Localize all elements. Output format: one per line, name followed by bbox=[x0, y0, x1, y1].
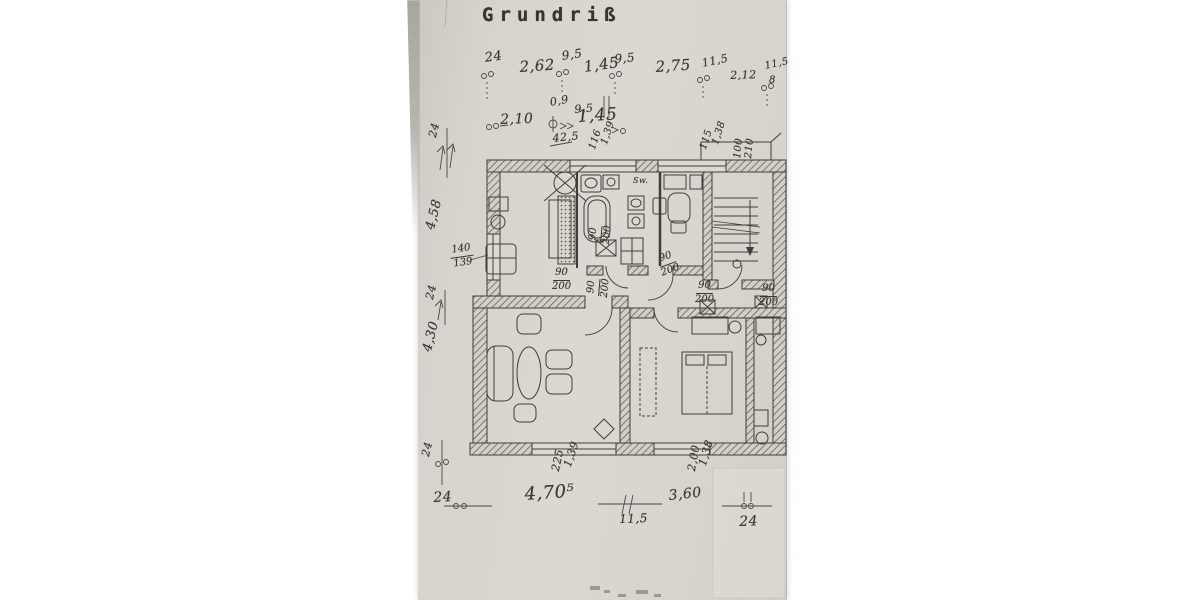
dim-3-60: 3,60 bbox=[668, 486, 702, 503]
dim-24-bot2: 24 bbox=[739, 514, 758, 529]
dim-4-70-5: 4,70⁵ bbox=[524, 483, 575, 504]
interior-walls bbox=[473, 172, 786, 443]
dim-2-12: 2,12 bbox=[730, 69, 757, 81]
dim-11-5-c: 11,5 bbox=[619, 512, 648, 525]
dim-9-5-a: 9,5 bbox=[561, 47, 583, 62]
door-90-200-e-numerator: 90 bbox=[760, 284, 777, 297]
door-90-200-d: 90200 bbox=[695, 281, 714, 305]
dim-9-5-b: 9,5 bbox=[614, 51, 636, 65]
bathroom-fixtures bbox=[581, 175, 644, 264]
dim-24-left1: 24 bbox=[427, 121, 441, 138]
door-90-200-e: 90200 bbox=[759, 284, 778, 308]
door-90-200-e-denominator: 200 bbox=[759, 297, 778, 309]
door-210: 210 bbox=[744, 138, 756, 160]
dim-42-5: 42,5 bbox=[552, 130, 580, 144]
door-90-200-a-denominator: 200 bbox=[552, 281, 571, 293]
dim-0-9: 0,9 bbox=[549, 94, 570, 108]
scan-speckles bbox=[590, 586, 661, 597]
dim-2-62: 2,62 bbox=[519, 58, 555, 75]
dim-2-75: 2,75 bbox=[655, 58, 691, 75]
dim-8: 8 bbox=[769, 76, 776, 86]
scanned-floorplan-page: Grundriß bbox=[0, 0, 1200, 600]
door-90-200-d-numerator: 90 bbox=[696, 281, 713, 294]
dim-24-left2: 24 bbox=[424, 283, 438, 300]
win-140-139: 140139 bbox=[449, 243, 475, 270]
door-90-200-a: 90200 bbox=[552, 268, 571, 292]
door-90-200-a-numerator: 90 bbox=[553, 268, 570, 281]
label-sw: Sw. bbox=[633, 177, 648, 185]
dim-2-10: 2,10 bbox=[500, 112, 534, 127]
upper-room-furniture bbox=[486, 165, 586, 274]
door-90-200-d-denominator: 200 bbox=[695, 294, 714, 306]
faint-underlying-page bbox=[713, 468, 785, 598]
dim-24-bot1: 24 bbox=[433, 490, 453, 505]
door-90-200-f: 90200 bbox=[586, 277, 612, 298]
dim-24-left3: 24 bbox=[420, 440, 434, 457]
dim-24-top: 24 bbox=[484, 50, 503, 65]
door-90-200-b: 90200 bbox=[588, 224, 614, 245]
staircase bbox=[712, 198, 760, 268]
paper-artifacts bbox=[445, 0, 447, 26]
door-90-200-f-denominator: 200 bbox=[598, 278, 611, 298]
floor-plan-drawing bbox=[0, 0, 1200, 600]
door-90-200-b-denominator: 200 bbox=[600, 225, 613, 245]
